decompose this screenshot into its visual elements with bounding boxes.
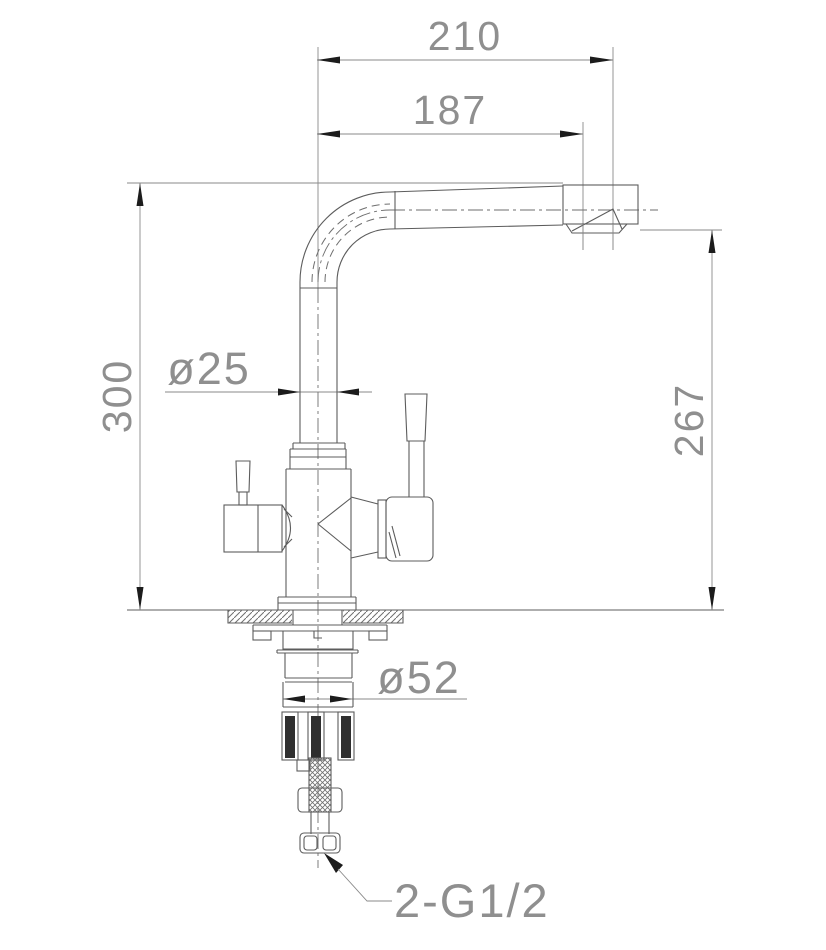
mounting-hardware: [253, 625, 387, 707]
centerlines: [318, 210, 658, 868]
spout-head: [563, 185, 638, 250]
dimension-spout-reach: 187: [317, 87, 583, 138]
dim-187-label: 187: [413, 87, 487, 133]
dimension-total-height: 300: [94, 183, 144, 610]
thread-callout-label: 2-G1/2: [394, 874, 550, 927]
left-valve: [224, 461, 282, 552]
faucet-technical-drawing: 210 187 300 267 ø25 ø52 2-G1/2: [0, 0, 826, 950]
dim-300-label: 300: [94, 359, 140, 433]
faucet-body: [278, 469, 356, 610]
dim-d52-label: ø52: [377, 652, 461, 703]
dim-210-label: 210: [428, 13, 502, 59]
right-valve: [351, 394, 433, 561]
dimension-spout-height: 267: [666, 230, 716, 610]
dimension-riser-diameter: ø25: [165, 343, 372, 396]
dimension-total-width: 210: [317, 13, 613, 64]
countertop-section: [228, 610, 403, 625]
thread-callout: 2-G1/2: [324, 853, 550, 927]
faucet-spout: [300, 186, 563, 443]
drawing-canvas: 210 187 300 267 ø25 ø52 2-G1/2: [0, 0, 826, 950]
threaded-shank: [298, 758, 342, 853]
dim-267-label: 267: [666, 383, 712, 457]
dim-d25-label: ø25: [167, 343, 251, 394]
